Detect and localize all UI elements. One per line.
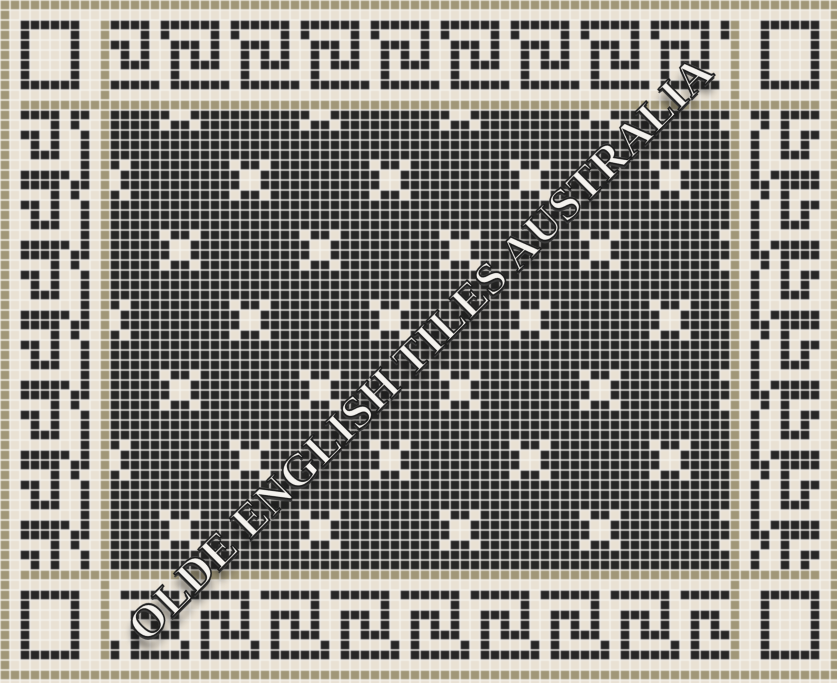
mosaic-pattern-canvas <box>0 0 837 683</box>
mosaic-product-image: OLDE ENGLISH TILES AUSTRALIA <box>0 0 837 683</box>
